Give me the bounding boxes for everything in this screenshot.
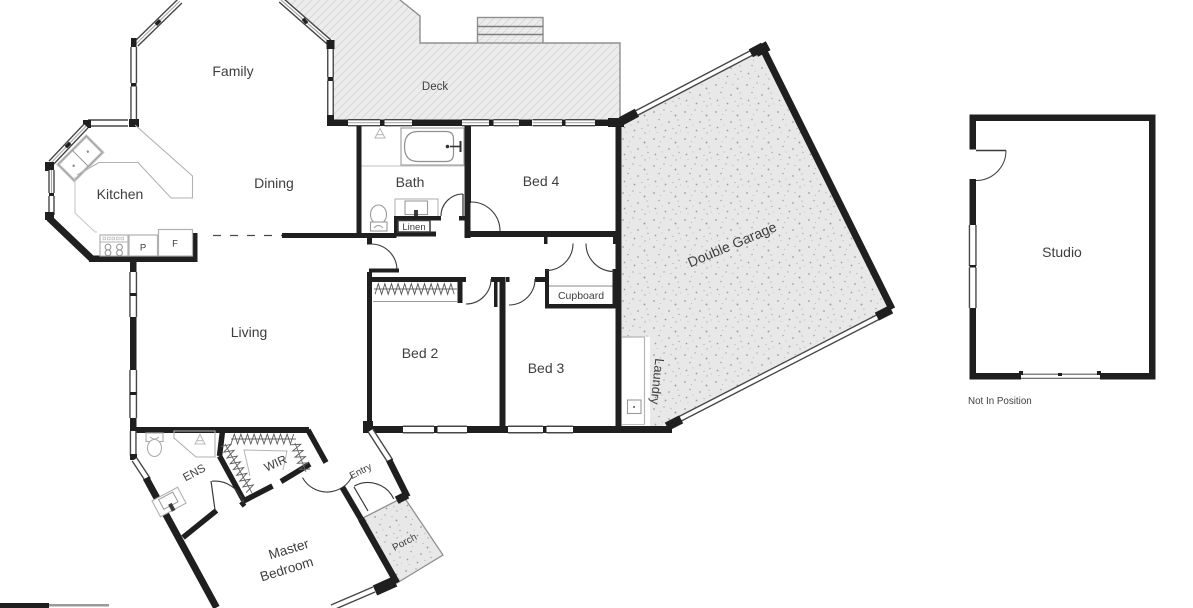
svg-text:F: F — [172, 239, 178, 250]
svg-text:Linen: Linen — [402, 222, 425, 233]
svg-text:Kitchen: Kitchen — [97, 186, 144, 202]
svg-text:Dining: Dining — [254, 175, 294, 191]
svg-text:Cupboard: Cupboard — [558, 290, 604, 302]
svg-text:P: P — [140, 243, 146, 254]
svg-text:Studio: Studio — [1042, 244, 1082, 260]
svg-text:Bath: Bath — [396, 174, 425, 190]
svg-text:Family: Family — [212, 63, 253, 79]
svg-text:Deck: Deck — [422, 81, 448, 93]
svg-text:Living: Living — [231, 324, 268, 340]
svg-text:Bed 2: Bed 2 — [402, 345, 439, 361]
svg-text:Bed 4: Bed 4 — [523, 173, 560, 189]
svg-text:Bed 3: Bed 3 — [528, 360, 565, 376]
svg-text:Not In Position: Not In Position — [968, 396, 1032, 407]
